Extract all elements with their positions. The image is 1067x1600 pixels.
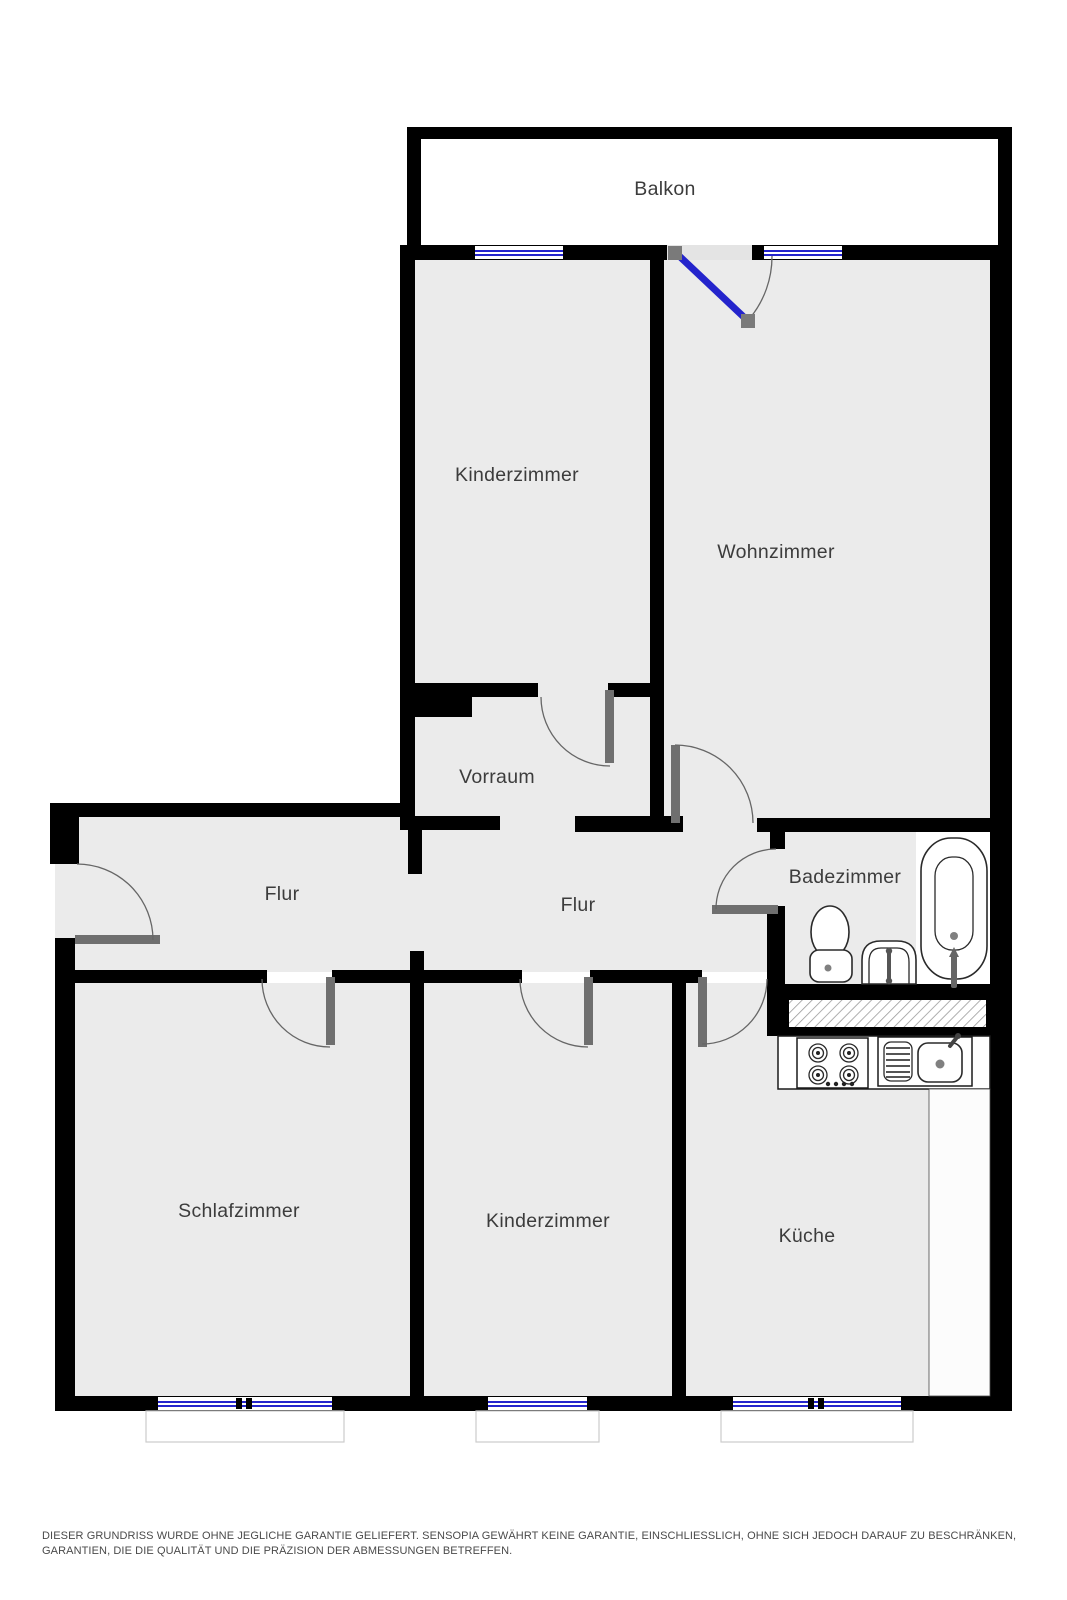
window-cap xyxy=(758,246,764,259)
door-leaf xyxy=(326,977,335,1045)
room-label-vorraum: Vorraum xyxy=(459,766,535,788)
wall-segment xyxy=(998,127,1012,247)
badezimmer-door-gap xyxy=(770,849,785,906)
door-leaf xyxy=(605,690,614,763)
door-leaf xyxy=(698,977,707,1047)
room-kinderzimmer-bottom-floor xyxy=(424,983,672,1396)
window-divider xyxy=(236,1398,242,1409)
wall-segment xyxy=(785,984,1012,996)
room-label-wohnzimmer: Wohnzimmer xyxy=(717,541,835,563)
door-hinge xyxy=(741,314,755,328)
room-schlafzimmer-floor xyxy=(75,983,410,1396)
wall-segment xyxy=(55,970,267,983)
stove-knob xyxy=(834,1082,838,1086)
entrance-door-gap xyxy=(55,864,75,938)
window-cap xyxy=(152,1397,158,1410)
room-label-flur-middle: Flur xyxy=(561,894,596,916)
door-leaf xyxy=(712,905,778,914)
door-leaf xyxy=(671,745,680,823)
room-label-kinderzimmer-top: Kinderzimmer xyxy=(455,464,579,486)
bathtub-icon xyxy=(921,838,987,988)
window-cap xyxy=(332,1397,338,1410)
bathtub-faucet xyxy=(951,955,957,988)
stove-burner xyxy=(847,1073,851,1077)
room-wohnzimmer-floor xyxy=(664,258,990,822)
door-hinge xyxy=(668,246,682,260)
room-balkon-floor xyxy=(421,139,998,247)
door-leaf xyxy=(75,935,160,944)
window-glass-core xyxy=(469,252,569,254)
room-label-balkon: Balkon xyxy=(634,178,695,200)
wall-segment xyxy=(408,818,422,874)
wall-segment xyxy=(410,951,424,1411)
wall-segment xyxy=(50,803,79,864)
wall-segment xyxy=(407,127,1012,139)
kitchen-counter xyxy=(778,1033,990,1089)
room-label-flur-left: Flur xyxy=(265,883,300,905)
room-label-schlafzimmer: Schlafzimmer xyxy=(178,1200,300,1222)
wall-segment xyxy=(415,683,472,717)
window-cap xyxy=(901,1397,907,1410)
stove-knob xyxy=(850,1082,854,1086)
floor-plan-page: { "rooms": { "balkon": "Balkon", "kinder… xyxy=(0,0,1067,1600)
kitchen-tall-counter xyxy=(929,1089,990,1396)
window-icon-kinderzimmer-top xyxy=(469,246,569,259)
window-glass-core xyxy=(152,1403,338,1405)
window-glass-core xyxy=(758,252,848,254)
stove-icon xyxy=(797,1038,868,1088)
window-sill xyxy=(146,1411,344,1442)
window-cap xyxy=(469,246,475,259)
washbasin-icon xyxy=(862,941,916,984)
toilet-flush-button xyxy=(825,965,832,972)
wall-segment xyxy=(757,818,1012,832)
wall-segment xyxy=(400,245,415,830)
room-label-kueche: Küche xyxy=(779,1225,836,1247)
room-label-kinderzimmer-bottom: Kinderzimmer xyxy=(486,1210,610,1232)
toilet-tank xyxy=(810,950,852,982)
door-leaf xyxy=(584,977,593,1045)
disclaimer-text: DIESER GRUNDRISS WURDE OHNE JEGLICHE GAR… xyxy=(42,1529,1034,1559)
wall-segment xyxy=(770,832,785,849)
wall-segment xyxy=(407,127,421,247)
toilet-icon xyxy=(810,906,852,982)
room-label-badezimmer: Badezimmer xyxy=(789,866,902,888)
bathtub-drain xyxy=(950,932,958,940)
washbasin-faucet-knob xyxy=(886,948,892,954)
sink-faucet-knob xyxy=(955,1033,961,1039)
window-sill xyxy=(476,1411,599,1442)
window-icon-schlafzimmer xyxy=(146,1397,344,1442)
window-cap xyxy=(563,246,569,259)
window-sill xyxy=(721,1411,913,1442)
sink-drain xyxy=(936,1060,945,1069)
window-divider xyxy=(808,1398,814,1409)
wall-segment xyxy=(55,803,415,817)
window-divider xyxy=(818,1398,824,1409)
window-cap xyxy=(842,246,848,259)
kitchen-sink-icon xyxy=(878,1033,972,1086)
wall-segment xyxy=(55,938,75,1411)
window-glass-core xyxy=(482,1403,593,1405)
wall-segment xyxy=(575,816,683,832)
washbasin-faucet-knob xyxy=(886,978,892,984)
window-icon-kueche xyxy=(721,1397,913,1442)
window-cap xyxy=(727,1397,733,1410)
stove-body xyxy=(797,1038,868,1088)
stove-burner xyxy=(816,1073,820,1077)
stove-burner xyxy=(847,1051,851,1055)
wall-segment xyxy=(767,906,785,1036)
wall-segment xyxy=(672,970,686,1411)
shaft-hatch-icon xyxy=(789,1000,986,1027)
floor-plan-drawing: Balkon Kinderzimmer Wohnzimmer Vorraum F… xyxy=(0,0,1067,1600)
window-icon-kinderzimmer-bottom xyxy=(476,1397,599,1442)
wall-segment xyxy=(413,816,500,830)
wohnzimmer-door-gap xyxy=(683,818,757,832)
window-cap xyxy=(482,1397,488,1410)
wall-segment xyxy=(332,970,522,983)
window-divider xyxy=(246,1398,252,1409)
stove-knob xyxy=(826,1082,830,1086)
window-cap xyxy=(587,1397,593,1410)
wall-segment xyxy=(990,245,1012,1411)
wall-segment xyxy=(608,683,664,697)
stove-knob xyxy=(842,1082,846,1086)
stove-burner xyxy=(816,1051,820,1055)
wall-segment xyxy=(650,258,664,832)
window-glass-core xyxy=(727,1403,907,1405)
